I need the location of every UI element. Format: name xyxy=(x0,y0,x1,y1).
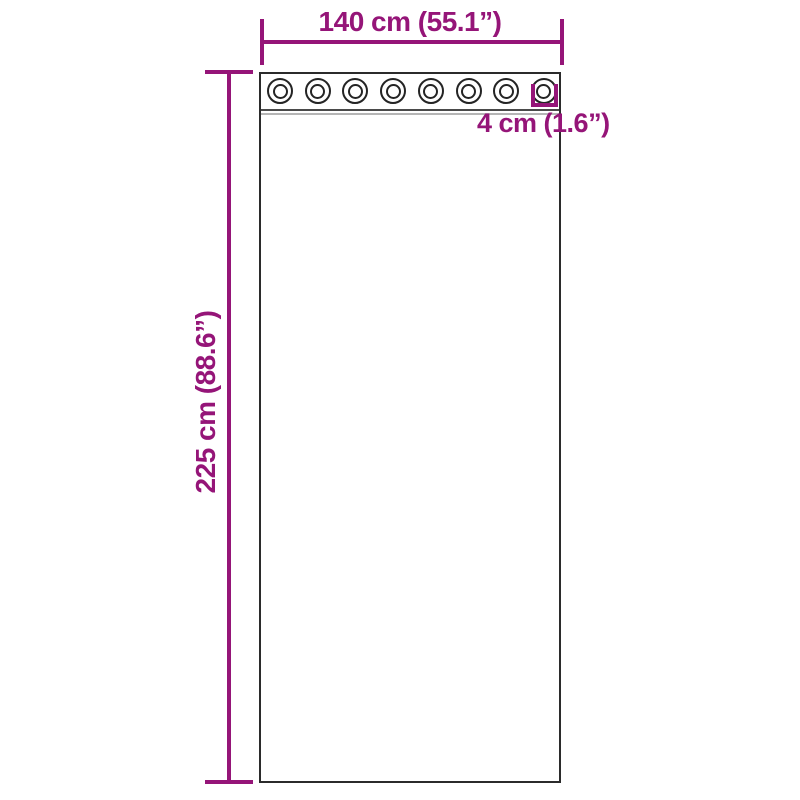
width-dimension-label: 140 cm (55.1”) xyxy=(259,8,561,36)
grommet-dimension-bracket xyxy=(531,84,558,107)
curtain-panel xyxy=(259,72,561,783)
height-dimension-line xyxy=(227,70,231,784)
grommet-icon xyxy=(418,78,444,104)
height-dimension-cap-bottom xyxy=(205,780,253,784)
height-dimension-cap-top xyxy=(205,70,253,74)
grommet-icon xyxy=(493,78,519,104)
dimension-diagram: 140 cm (55.1”) 225 cm (88.6”) 4 cm (1.6”… xyxy=(0,0,800,800)
grommet-icon xyxy=(305,78,331,104)
width-dimension-line xyxy=(262,40,562,44)
grommet-diameter-label: 4 cm (1.6”) xyxy=(477,110,610,137)
grommet-icon xyxy=(380,78,406,104)
grommet-icon xyxy=(342,78,368,104)
grommet-icon xyxy=(267,78,293,104)
grommet-row xyxy=(267,78,557,104)
height-dimension-label: 225 cm (88.6”) xyxy=(191,282,221,522)
grommet-icon xyxy=(456,78,482,104)
